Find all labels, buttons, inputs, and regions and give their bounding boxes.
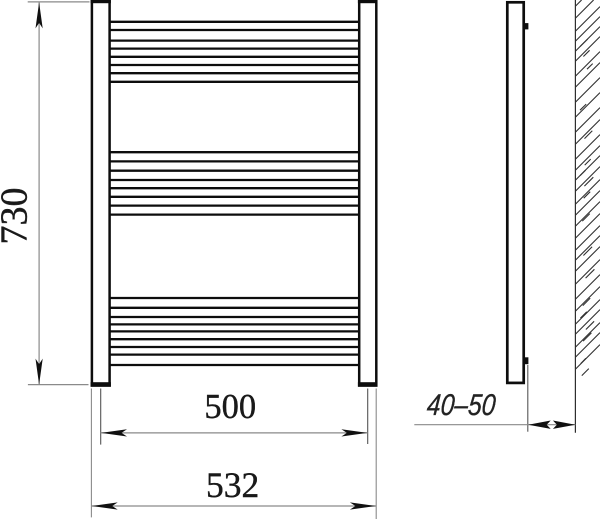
svg-text:500: 500 xyxy=(204,388,256,426)
svg-text:40–50: 40–50 xyxy=(426,388,498,422)
svg-text:532: 532 xyxy=(206,465,259,505)
svg-text:730: 730 xyxy=(0,188,36,245)
